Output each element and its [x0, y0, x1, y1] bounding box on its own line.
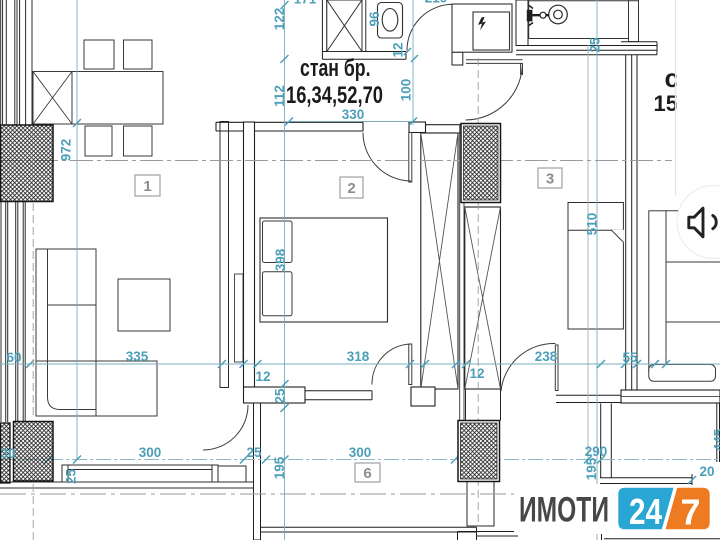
- svg-text:238: 238: [535, 349, 558, 364]
- svg-text:510: 510: [585, 213, 600, 236]
- svg-text:300: 300: [139, 445, 162, 460]
- svg-text:195: 195: [272, 456, 287, 479]
- svg-text:16,34,52,70: 16,34,52,70: [286, 82, 383, 109]
- svg-text:96: 96: [367, 11, 382, 27]
- svg-text:25: 25: [273, 388, 288, 404]
- svg-text:25: 25: [588, 37, 603, 53]
- svg-text:398: 398: [273, 248, 288, 271]
- svg-text:290: 290: [585, 444, 608, 459]
- svg-text:330: 330: [342, 107, 365, 122]
- svg-text:171: 171: [294, 0, 317, 7]
- svg-text:30: 30: [0, 446, 15, 461]
- svg-text:25: 25: [246, 445, 262, 460]
- svg-text:12: 12: [255, 369, 270, 384]
- svg-text:210: 210: [425, 0, 448, 6]
- svg-text:60: 60: [6, 350, 21, 365]
- svg-text:12: 12: [469, 366, 484, 381]
- svg-text:ИМОТИ: ИМОТИ: [519, 491, 609, 530]
- svg-text:стан бр.: стан бр.: [300, 55, 371, 82]
- svg-text:112: 112: [272, 85, 287, 107]
- svg-text:7: 7: [681, 492, 701, 533]
- svg-text:445: 445: [712, 428, 720, 451]
- svg-text:25: 25: [64, 469, 79, 485]
- svg-text:12: 12: [391, 42, 406, 57]
- svg-text:972: 972: [59, 139, 74, 162]
- svg-text:100: 100: [399, 79, 414, 102]
- svg-text:20: 20: [699, 464, 714, 479]
- svg-text:6: 6: [363, 465, 371, 482]
- svg-text:55: 55: [622, 350, 638, 365]
- svg-text:300: 300: [349, 445, 372, 460]
- svg-text:122: 122: [272, 8, 287, 31]
- svg-text:1: 1: [143, 178, 151, 195]
- svg-text:335: 335: [126, 349, 149, 364]
- svg-text:3: 3: [546, 171, 554, 188]
- svg-text:2: 2: [347, 180, 355, 197]
- svg-text:318: 318: [347, 349, 370, 364]
- svg-text:24: 24: [629, 491, 662, 532]
- svg-text:195: 195: [584, 457, 599, 480]
